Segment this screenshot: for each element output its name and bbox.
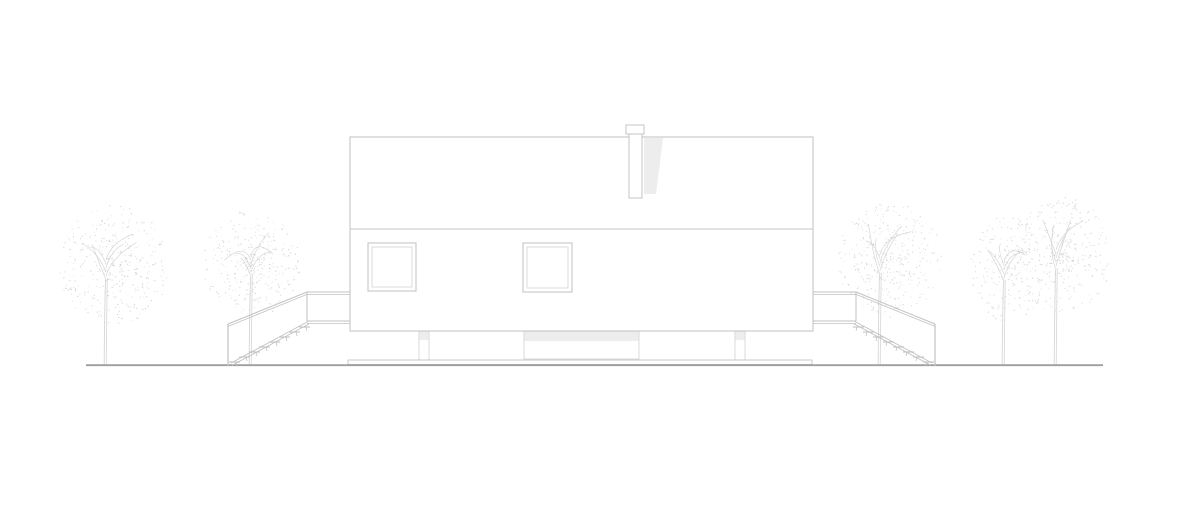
- tree-trunk: [1002, 282, 1003, 365]
- tree-foliage: [839, 204, 942, 318]
- tree-left-inner: [205, 212, 301, 365]
- base-layer: [86, 331, 1103, 365]
- tread-support: [906, 352, 907, 356]
- tread-support: [896, 347, 897, 351]
- window-outer-frame: [368, 243, 416, 291]
- drawing-canvas: [0, 0, 1200, 507]
- tread-support: [276, 342, 277, 346]
- tread-support: [256, 352, 257, 356]
- elevation-drawing: [0, 0, 1200, 507]
- tread-support: [306, 327, 307, 331]
- tree-trunk: [1056, 268, 1057, 365]
- tread-support: [286, 337, 287, 341]
- tread-support: [266, 347, 267, 351]
- tree-trunk: [878, 275, 879, 366]
- handrail-diagonal: [228, 292, 307, 324]
- stair-stringer: [854, 324, 931, 366]
- tread-support: [886, 342, 887, 346]
- tread-support: [856, 327, 857, 331]
- tree-branch: [90, 247, 106, 264]
- recess-shadow: [524, 331, 639, 341]
- tree-branch: [880, 232, 911, 255]
- tread-support: [876, 337, 877, 341]
- tread-support: [296, 332, 297, 336]
- tree-right-outer-b: [1017, 197, 1109, 365]
- chimney-cap: [626, 125, 644, 134]
- tree-foliage: [971, 218, 1043, 322]
- tree-trunk: [880, 273, 881, 366]
- tree-left-outer: [60, 205, 167, 365]
- tree-trunk: [1054, 270, 1055, 365]
- stair-stringer: [232, 324, 309, 366]
- tree-branch: [106, 243, 136, 276]
- handrail-diagonal: [228, 294, 307, 326]
- tree-branch: [92, 245, 106, 280]
- stair-right: [813, 292, 935, 366]
- tread-support: [866, 332, 867, 336]
- pier-shadow: [735, 331, 745, 340]
- handrail-diagonal: [856, 292, 935, 324]
- stair-left: [228, 292, 350, 366]
- house-layer: [350, 125, 813, 331]
- window-outer-frame: [523, 243, 572, 292]
- tree-foliage: [1017, 197, 1109, 312]
- tree-trunk: [1004, 280, 1005, 365]
- tree-trunk: [106, 278, 107, 365]
- tree-foliage: [60, 205, 167, 324]
- pier-shadow: [419, 331, 429, 340]
- ground-slab: [348, 360, 812, 365]
- house-outline: [350, 137, 813, 331]
- tree-right-outer-a: [971, 218, 1043, 366]
- chimney-stack: [629, 134, 642, 198]
